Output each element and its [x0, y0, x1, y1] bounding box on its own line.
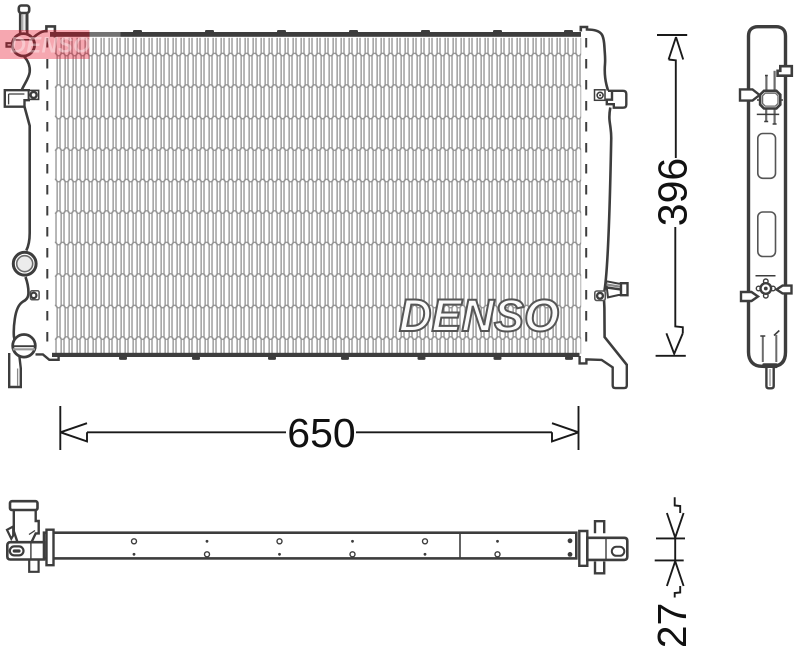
svg-text:396: 396	[649, 158, 695, 226]
svg-text:27: 27	[649, 603, 695, 646]
svg-text:DENSO: DENSO	[10, 33, 91, 58]
svg-text:650: 650	[287, 410, 355, 456]
svg-text:DENSO: DENSO	[399, 290, 559, 341]
